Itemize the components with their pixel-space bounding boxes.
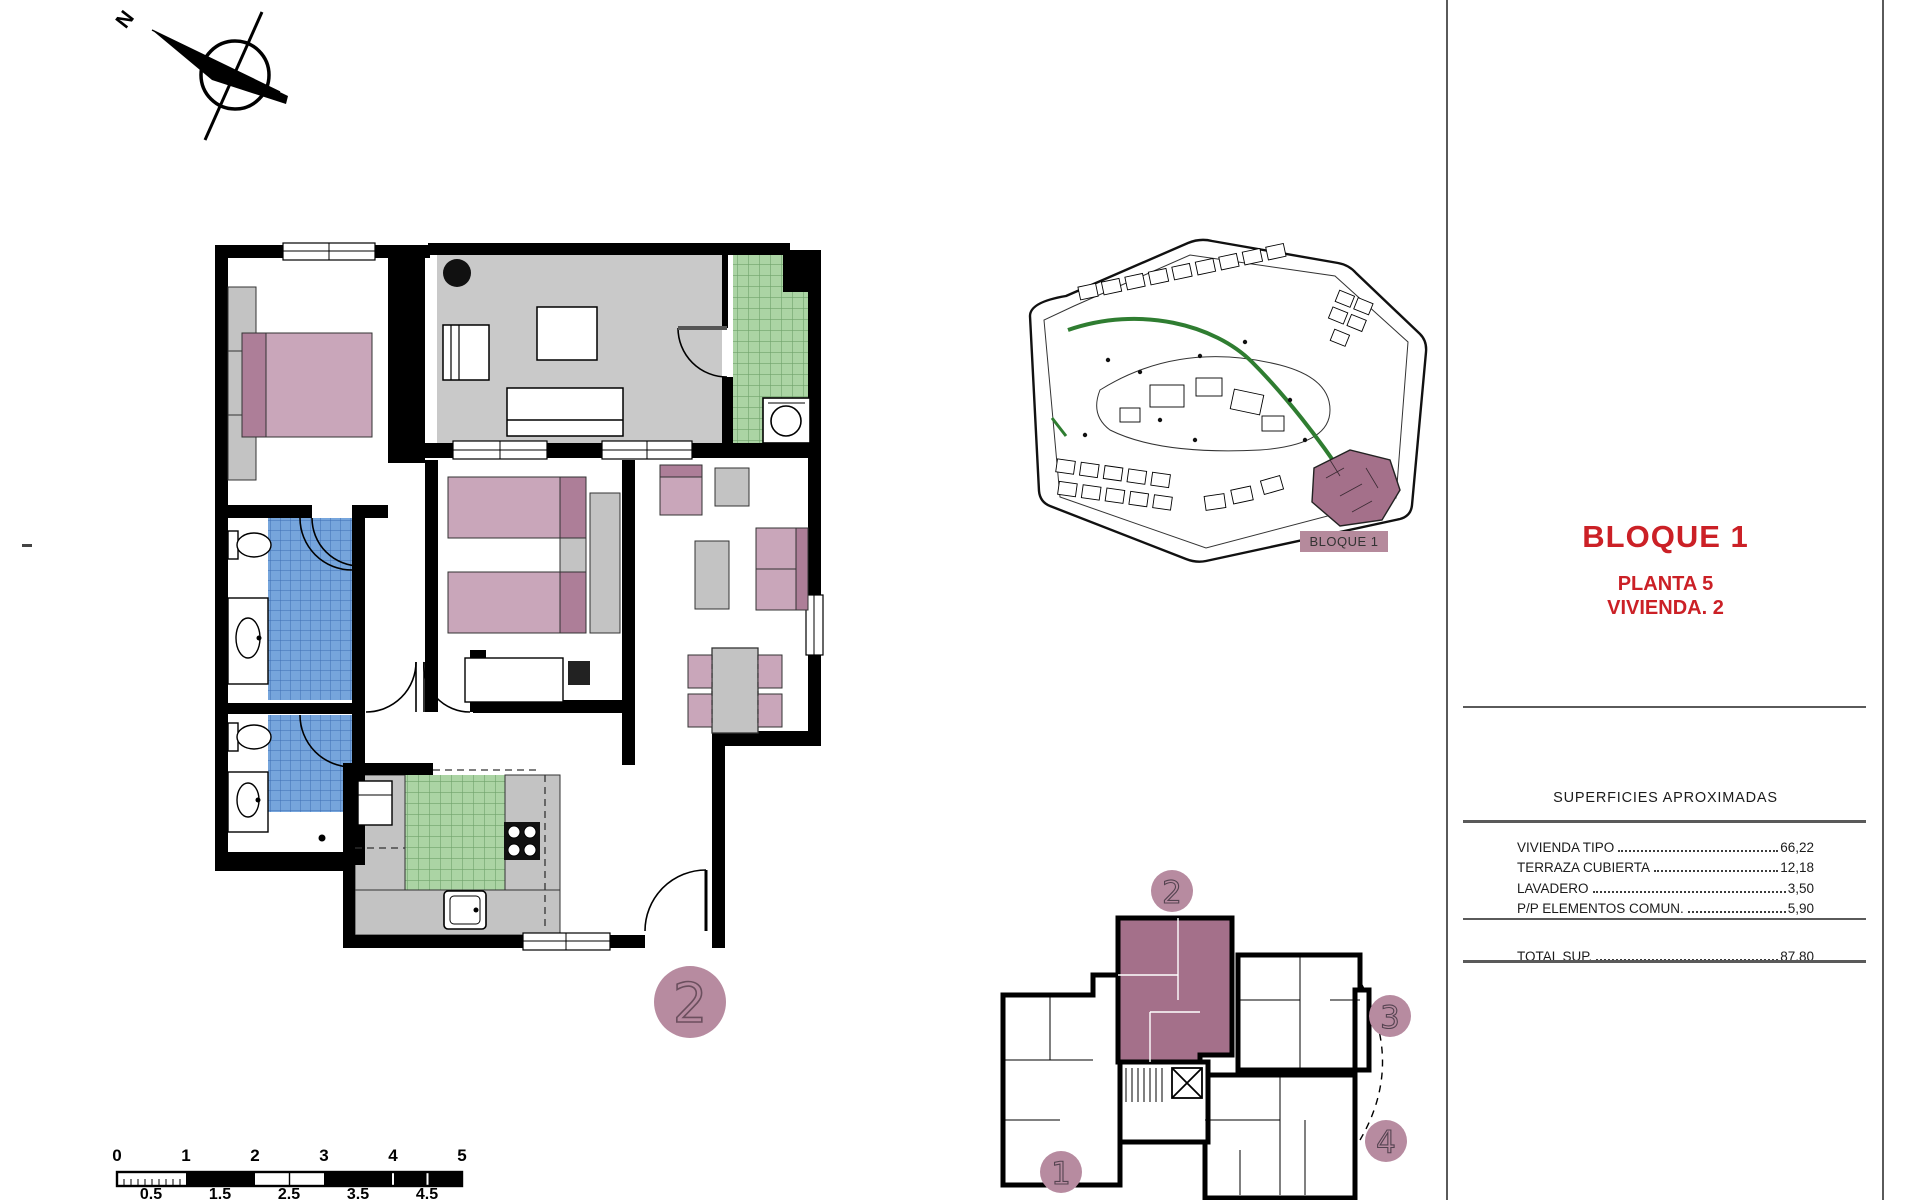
single-bed-1 — [448, 477, 560, 538]
area-value: 66,22 — [1780, 840, 1814, 855]
scale-label-5: 5 — [444, 1146, 480, 1166]
plan-sheet: 2 — [0, 0, 1920, 1200]
scale-mid-2: 2.5 — [269, 1186, 309, 1200]
window-living-right — [806, 595, 823, 655]
key-badge-1: 1 — [1051, 1156, 1071, 1192]
bed-headboard — [242, 333, 266, 437]
living-furniture — [660, 465, 808, 733]
area-row: TERRAZA CUBIERTA 12,18 — [1517, 855, 1814, 876]
dot-leader — [1654, 870, 1778, 872]
window-bedroom1 — [283, 243, 375, 260]
site-plan — [1030, 240, 1426, 562]
title-block: BLOQUE 1 PLANTA 5 VIVIENDA. 2 — [1447, 520, 1884, 620]
area-label: TERRAZA CUBIERTA — [1517, 860, 1650, 875]
double-bed — [266, 333, 372, 437]
square-table — [537, 307, 597, 360]
bathroom2-floor — [268, 715, 352, 812]
nightstand — [560, 538, 586, 572]
window-kitchen-bottom — [523, 933, 610, 950]
area-row: LAVADERO 3,50 — [1517, 875, 1814, 896]
areas-header: SUPERFICIES APROXIMADAS — [1447, 790, 1884, 806]
dot-leader — [1618, 850, 1778, 852]
key-badge-2: 2 — [1162, 875, 1182, 911]
edge-tick-mark — [22, 544, 32, 547]
lavadero-washer — [763, 398, 810, 443]
divider-rule — [1463, 706, 1866, 708]
scale-mid-3: 3.5 — [338, 1186, 378, 1200]
area-value: 5,90 — [1788, 901, 1814, 916]
door-entry — [645, 870, 706, 931]
scale-bar — [117, 1172, 462, 1186]
area-label: VIVIENDA TIPO — [1517, 840, 1614, 855]
scale-mid-4: 4.5 — [407, 1186, 447, 1200]
area-label: LAVADERO — [1517, 881, 1589, 896]
wardrobe2 — [590, 493, 620, 633]
bathroom1-floor — [268, 518, 352, 700]
door-handle-dot — [319, 835, 326, 842]
scale-label-1: 1 — [168, 1146, 204, 1166]
round-table — [443, 259, 471, 287]
single-bed-2 — [448, 572, 560, 633]
floor-title: PLANTA 5 — [1447, 572, 1884, 596]
key-badge-3: 3 — [1380, 1000, 1400, 1036]
bedroom1-furniture — [228, 287, 372, 480]
scale-label-4: 4 — [375, 1146, 411, 1166]
unit-title: VIVIENDA. 2 — [1447, 596, 1884, 620]
dining-table — [712, 648, 758, 733]
dot-leader — [1593, 891, 1786, 893]
areas-rule-mid — [1463, 918, 1866, 920]
scale-mid-1: 1.5 — [200, 1186, 240, 1200]
key-badge-4: 4 — [1376, 1125, 1396, 1161]
key-unit-3 — [1238, 955, 1360, 1070]
scale-label-0: 0 — [99, 1146, 135, 1166]
window-terrace-bedroom2 — [453, 441, 547, 459]
site-plan-block-label: BLOQUE 1 — [1300, 531, 1388, 552]
areas-rule-top — [1463, 820, 1866, 823]
window-terrace-living — [602, 441, 692, 459]
main-unit-badge: 2 — [654, 966, 726, 1038]
scale-mid-0: 0.5 — [131, 1186, 171, 1200]
area-row: VIVIENDA TIPO 66,22 — [1517, 834, 1814, 855]
terrace-chair — [443, 325, 489, 380]
block-title: BLOQUE 1 — [1447, 520, 1884, 554]
areas-table: SUPERFICIES APROXIMADAS VIVIENDA TIPO 66… — [1447, 790, 1884, 964]
area-row: P/P ELEMENTOS COMUN. 5,90 — [1517, 896, 1814, 917]
bedroom2-furniture — [448, 477, 620, 702]
key-unit-2-highlighted — [1118, 918, 1232, 1062]
key-plan: 1 2 3 4 — [1003, 870, 1411, 1198]
areas-rule-bottom — [1463, 960, 1866, 963]
bench — [507, 388, 623, 436]
desk — [465, 658, 563, 702]
toilet-2 — [237, 725, 271, 749]
area-value: 3,50 — [1788, 881, 1814, 896]
area-value: 12,18 — [1780, 860, 1814, 875]
door-hall-left — [366, 662, 416, 712]
stool — [568, 661, 590, 685]
fridge — [358, 781, 392, 825]
toilet-1 — [237, 533, 271, 557]
area-label: P/P ELEMENTOS COMUN. — [1517, 901, 1684, 916]
compass-rose — [152, 12, 288, 140]
dot-leader — [1688, 911, 1786, 913]
side-table — [715, 468, 749, 506]
sink-1 — [236, 618, 260, 658]
main-unit-number: 2 — [673, 972, 707, 1035]
coffee-table — [695, 541, 729, 609]
scale-label-2: 2 — [237, 1146, 273, 1166]
main-floor-plan: 2 — [215, 243, 823, 1038]
scale-label-3: 3 — [306, 1146, 342, 1166]
kitchen-floor — [405, 775, 505, 890]
